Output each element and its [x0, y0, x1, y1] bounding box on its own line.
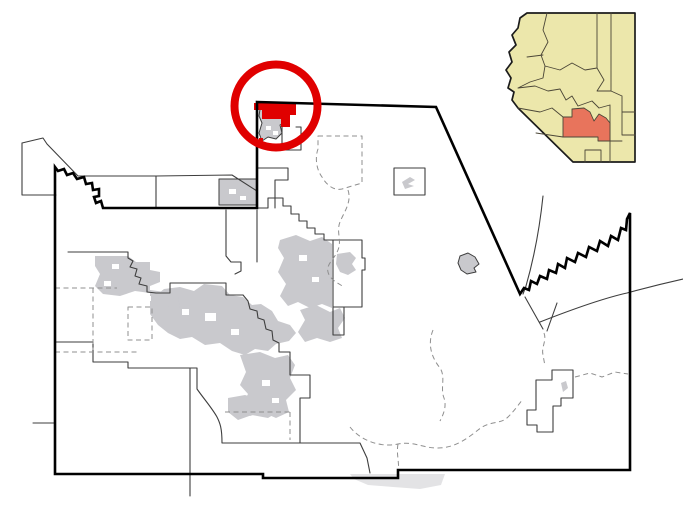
- urban-blob: [95, 256, 160, 296]
- urban-rect-outlined: [219, 179, 257, 205]
- cdp-line: [430, 330, 445, 421]
- boundary-line: [55, 342, 370, 473]
- urban-blob: [150, 284, 296, 355]
- cdp-line: [316, 136, 362, 189]
- river-line: [540, 279, 683, 322]
- cdp-line: [350, 399, 523, 448]
- state-inset: [506, 13, 635, 162]
- boundary-line: [226, 210, 257, 274]
- urban-speck: [402, 177, 415, 189]
- urban-blob: [336, 252, 356, 275]
- boundary-line: [527, 370, 573, 432]
- urban-blob: [278, 235, 332, 308]
- urban-blob-outlined: [458, 253, 479, 274]
- urban-speck: [561, 381, 568, 392]
- county-map: [0, 0, 683, 512]
- cdp-line: [543, 333, 545, 366]
- municipal-boundaries: [22, 127, 683, 496]
- urban-blob: [298, 305, 345, 342]
- boundary-line: [525, 297, 557, 331]
- map-canvas: [0, 0, 683, 512]
- cdp-boundaries: [55, 136, 628, 474]
- cdp-line: [575, 372, 628, 377]
- boundary-line: [258, 198, 333, 240]
